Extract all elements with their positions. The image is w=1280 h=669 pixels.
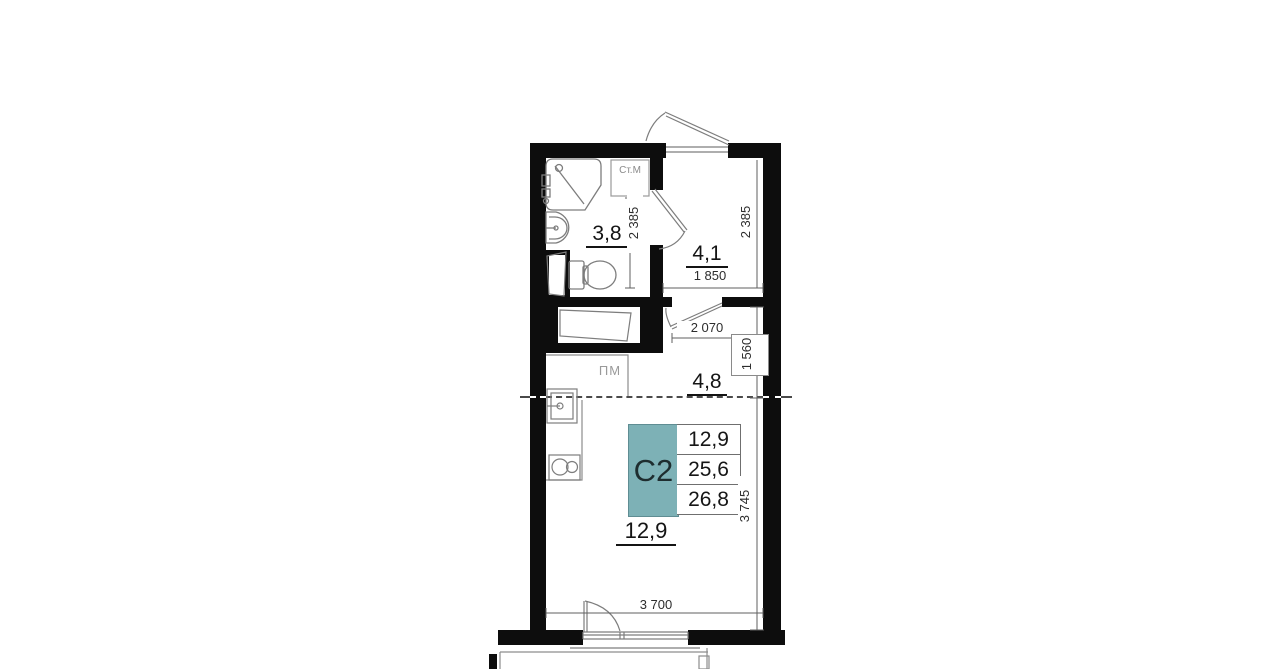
dim-living-width: 3 700 bbox=[626, 598, 686, 611]
stove bbox=[549, 455, 580, 480]
room-area-living: 12,9 bbox=[616, 520, 676, 546]
table-row-total-area: 26,8 bbox=[677, 485, 741, 515]
shower-cabin bbox=[542, 159, 601, 210]
plan-linework bbox=[0, 0, 1280, 669]
dim-kitchen-niche-depth: 1 560 bbox=[740, 324, 756, 384]
closet-door-leaf bbox=[560, 310, 631, 341]
balcony-slab bbox=[500, 648, 709, 669]
toilet bbox=[569, 261, 616, 289]
dim-bathroom-depth: 2 385 bbox=[627, 193, 643, 253]
dim-kitchen-opening: 2 070 bbox=[677, 321, 737, 334]
unit-code: С2 bbox=[634, 453, 674, 489]
zone-divider-dash-on-right-wall bbox=[763, 396, 781, 398]
entrance-door bbox=[646, 112, 729, 152]
room-area-bathroom: 3,8 bbox=[586, 223, 628, 248]
room-area-kitchen-niche: 4,8 bbox=[687, 371, 727, 396]
dim-hallway-width: 1 850 bbox=[680, 269, 740, 282]
dishwasher-place-label: ПМ bbox=[590, 364, 630, 377]
dimension-lines bbox=[546, 160, 764, 630]
table-row-area: 25,6 bbox=[677, 455, 741, 485]
washing-machine-label: Ст.М bbox=[612, 166, 648, 176]
floor-plan: С2 12,9 25,6 26,8 3,8 4,1 4,8 12,9 1 850… bbox=[0, 0, 1280, 669]
bathroom-door bbox=[652, 189, 687, 249]
zone-divider-dash-on-left-wall bbox=[530, 396, 546, 398]
bath-sink bbox=[546, 212, 569, 243]
dim-living-depth: 3 745 bbox=[738, 476, 754, 536]
dim-hallway-depth: 2 385 bbox=[739, 192, 755, 252]
unit-areas-table: 12,9 25,6 26,8 bbox=[677, 424, 741, 515]
room-area-hallway: 4,1 bbox=[686, 243, 728, 268]
unit-code-box: С2 bbox=[628, 424, 679, 517]
kitchen-sink bbox=[547, 389, 577, 423]
table-row-living-area: 12,9 bbox=[677, 424, 741, 455]
vent-duct-flap bbox=[547, 252, 566, 296]
